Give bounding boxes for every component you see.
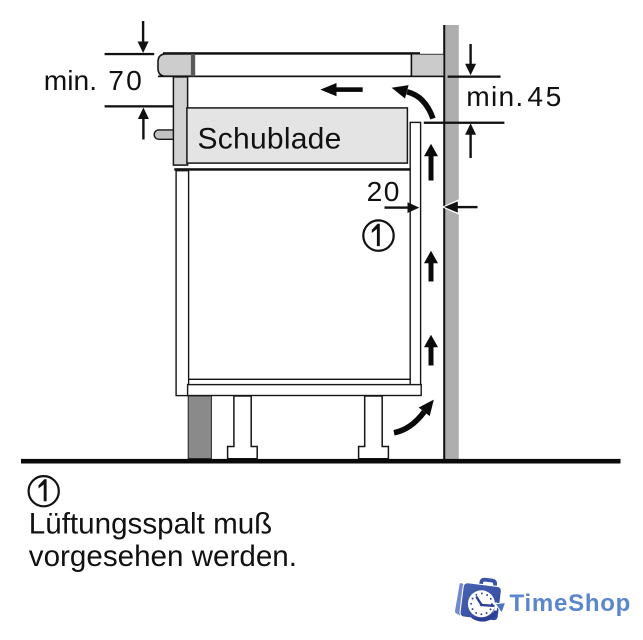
svg-text:20: 20 [367, 175, 401, 207]
svg-text:TimeShop: TimeShop [510, 590, 632, 617]
svg-text:min.45: min.45 [466, 80, 563, 112]
svg-text:vorgesehen werden.: vorgesehen werden. [29, 540, 297, 573]
svg-text:Schublade: Schublade [198, 122, 342, 155]
svg-text:min.70: min.70 [44, 64, 144, 96]
svg-text:Lüftungsspalt muß: Lüftungsspalt muß [29, 508, 272, 541]
